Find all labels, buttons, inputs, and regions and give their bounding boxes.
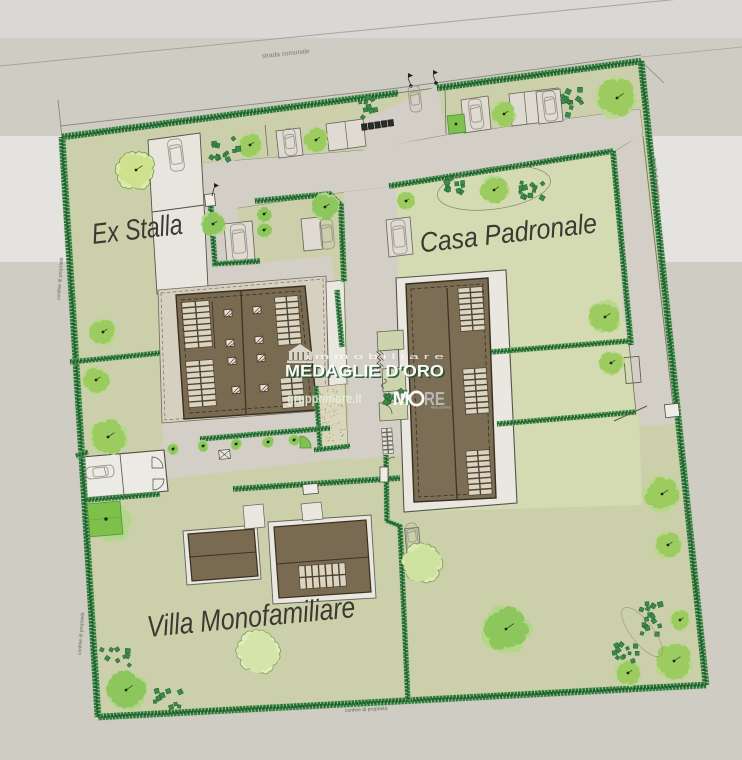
- svg-text:REAL ESTATE: REAL ESTATE: [431, 406, 451, 410]
- svg-text:MEDAGLIE D'ORO: MEDAGLIE D'ORO: [285, 362, 444, 381]
- svg-text:i m m o b i l i a r e: i m m o b i l i a r e: [306, 352, 444, 361]
- svg-text:gruppomore.it: gruppomore.it: [287, 390, 362, 406]
- svg-text:M: M: [393, 389, 410, 410]
